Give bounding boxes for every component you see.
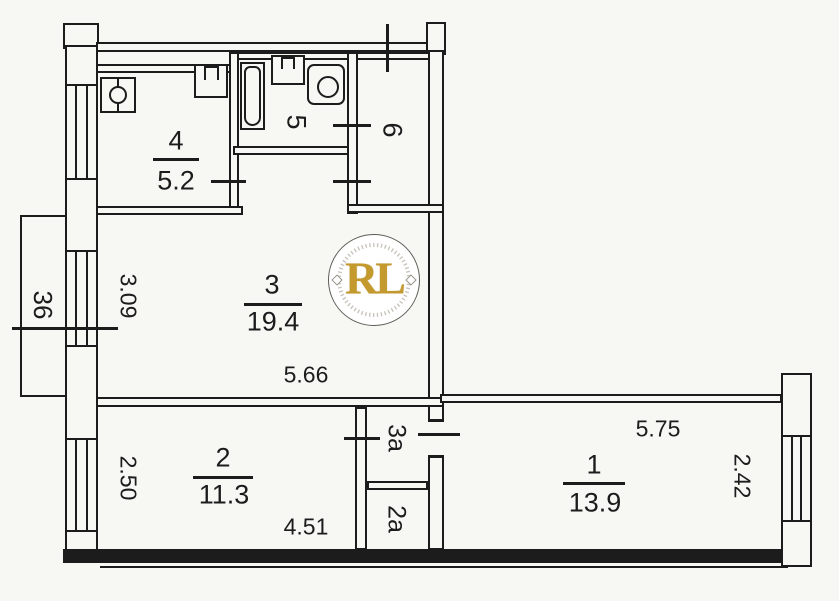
wall-room4-room5 (229, 52, 239, 215)
wall-3a-2a (367, 481, 428, 490)
balcony-door-tick (12, 327, 118, 330)
room6-door-tick (333, 180, 371, 183)
dim-room3-width: 5.66 (284, 364, 329, 387)
toilet-symbol (307, 64, 345, 105)
wall-room3-bottom (96, 397, 444, 407)
watermark-letters: RL (345, 251, 403, 304)
room4-number: 4 (168, 128, 183, 155)
room1-area: 13.9 (569, 490, 622, 517)
top-wall-vent-tick (386, 24, 389, 72)
wall-room2-hall (355, 407, 367, 550)
window-room2 (65, 438, 98, 532)
room3-number: 3 (264, 272, 279, 299)
dim-room3-height: 3.09 (117, 274, 140, 319)
room5-room6-tick (333, 124, 371, 127)
watermark-logo: RL (328, 234, 420, 326)
wall-left-seg3 (65, 345, 98, 440)
room2-number: 2 (215, 445, 230, 472)
wall-bottom-outline (100, 566, 788, 568)
dim-room2-width: 4.51 (284, 516, 329, 539)
room3-area: 19.4 (247, 309, 300, 336)
entrance-door-tick (418, 433, 460, 436)
wall-room5-bottom (233, 146, 358, 155)
wall-room1-right-upper (781, 373, 812, 437)
wall-left-seg2 (65, 178, 98, 252)
room2-area: 11.3 (199, 482, 250, 509)
wall-rooms56-top (233, 52, 430, 60)
room2a-number: 2a (384, 505, 409, 533)
room2-hall-door-tick (344, 437, 380, 440)
entrance-jamb-bottom (428, 455, 444, 457)
washbasin-symbol (271, 55, 305, 85)
wall-room5-room6 (347, 52, 358, 214)
wall-right-lower (428, 456, 444, 550)
room4-door-tick (211, 180, 246, 183)
room2-fraction-bar (193, 476, 253, 479)
room1-fraction-bar (563, 482, 625, 485)
window-room1 (781, 435, 812, 522)
floor-plan: 4 5.2 5 6 3 19.4 5.66 3.09 36 2 11.3 2.5… (0, 0, 839, 601)
wall-room1-top (440, 394, 782, 403)
window-kitchen (65, 84, 98, 180)
room1-number: 1 (586, 452, 601, 479)
wall-top (96, 42, 430, 52)
wall-left-seg1 (65, 45, 98, 86)
dim-room2-height: 2.50 (117, 456, 140, 501)
stove-symbol (194, 64, 228, 98)
wall-bottom (63, 549, 790, 563)
room6-number: 6 (379, 122, 406, 137)
wall-room1-right-lower (781, 520, 812, 567)
dim-room1-width: 5.75 (636, 418, 681, 441)
room4-area: 5.2 (157, 168, 195, 195)
room4-fraction-bar (153, 158, 199, 161)
balcony-number: 36 (30, 291, 56, 320)
kitchen-sink-symbol (100, 77, 136, 113)
dim-room1-height: 2.42 (731, 454, 754, 499)
room5-number: 5 (283, 114, 310, 129)
entrance-jamb-top (428, 419, 444, 421)
bathtub-symbol (240, 62, 265, 130)
wall-room4-bottom (96, 206, 243, 215)
wall-right-upper (428, 50, 444, 422)
room3-fraction-bar (244, 303, 302, 306)
room3a-number: 3a (384, 424, 409, 452)
window-living-balcony (65, 250, 98, 347)
wall-room6-bottom (347, 204, 444, 213)
